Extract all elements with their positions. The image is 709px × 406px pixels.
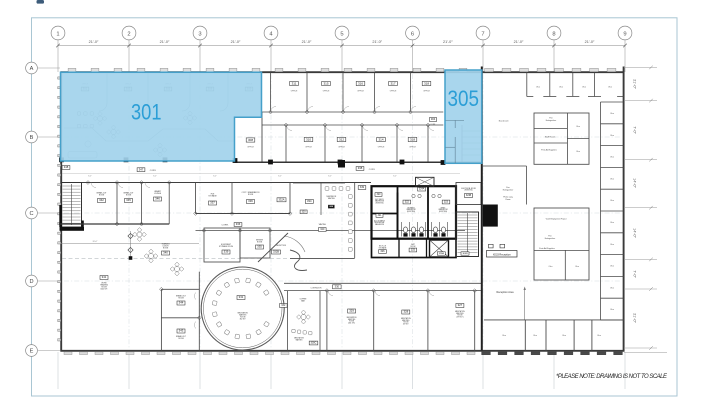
svg-text:8'-0″: 8'-0″	[88, 176, 92, 178]
svg-text:312: 312	[339, 137, 344, 141]
svg-text:Ofce: Ofce	[608, 87, 612, 89]
svg-text:327: 327	[458, 303, 463, 307]
svg-text:STORAGE ROOM: STORAGE ROOM	[219, 245, 234, 248]
svg-text:ROOM: ROOM	[178, 338, 184, 340]
svg-text:Fire: Fire	[506, 186, 509, 189]
svg-text:WAITING: WAITING	[319, 223, 327, 226]
svg-text:Ofce: Ofce	[533, 335, 537, 337]
svg-text:336: 336	[236, 222, 241, 226]
svg-text:OFFICE: OFFICE	[378, 147, 385, 149]
svg-text:337: 337	[210, 201, 215, 205]
svg-text:Ofce: Ofce	[610, 266, 614, 268]
svg-text:Staff Room: Staff Room	[545, 136, 556, 139]
svg-text:E: E	[30, 349, 34, 355]
svg-text:362 S.F.: 362 S.F.	[240, 318, 247, 320]
svg-text:CORRIDOR: CORRIDOR	[311, 287, 322, 289]
svg-text:335: 335	[257, 245, 262, 249]
svg-text:343: 343	[179, 329, 184, 333]
svg-text:(EXISTING): (EXISTING)	[407, 211, 416, 213]
svg-text:Ofce: Ofce	[597, 335, 601, 337]
svg-text:21'-0″: 21'-0″	[160, 40, 170, 44]
svg-text:Ofce: Ofce	[575, 266, 579, 268]
svg-text:CORR.: CORR.	[221, 225, 228, 227]
svg-text:329: 329	[349, 309, 354, 313]
svg-text:20'-0″: 20'-0″	[93, 241, 98, 243]
svg-text:315: 315	[323, 81, 328, 85]
svg-text:287 S.F.: 287 S.F.	[403, 324, 409, 326]
svg-text:ROOM: ROOM	[349, 321, 355, 323]
svg-text:Extinguisher: Extinguisher	[546, 119, 557, 122]
svg-text:332B: 332B	[273, 250, 279, 254]
svg-text:8'-0″: 8'-0″	[213, 176, 217, 178]
svg-text:331: 331	[239, 295, 244, 299]
svg-text:MEETING: MEETING	[456, 313, 464, 315]
svg-text:*PLEASE NOTE: DRAWING IS NOT T: *PLEASE NOTE: DRAWING IS NOT TO SCALE	[556, 374, 668, 380]
svg-text:Ofce: Ofce	[610, 178, 614, 180]
svg-text:3: 3	[198, 31, 201, 37]
svg-text:LOUNGE: LOUNGE	[154, 193, 162, 195]
svg-text:OFFICE: OFFICE	[409, 147, 416, 149]
svg-text:OFFICE: OFFICE	[357, 91, 364, 93]
svg-text:334: 334	[307, 199, 312, 203]
svg-text:Ofce: Ofce	[610, 222, 614, 224]
svg-text:349: 349	[360, 186, 365, 189]
svg-text:Ofce: Ofce	[549, 266, 553, 268]
svg-text:Ofce: Ofce	[610, 157, 614, 159]
svg-text:342: 342	[99, 198, 104, 202]
svg-text:Fire: Fire	[549, 117, 552, 120]
svg-text:ROOM: ROOM	[403, 322, 409, 324]
svg-text:21'-0″: 21'-0″	[372, 40, 382, 44]
svg-text:CORR.: CORR.	[430, 124, 436, 126]
svg-text:347: 347	[139, 167, 144, 171]
svg-text:Youth Employment Project: Youth Employment Project	[545, 218, 567, 221]
svg-text:(301 S.F.): (301 S.F.)	[348, 323, 355, 325]
svg-text:320: 320	[320, 228, 325, 231]
svg-text:8'-0″: 8'-0″	[393, 176, 397, 178]
svg-text:8: 8	[552, 31, 555, 37]
svg-text:Extinguisher: Extinguisher	[545, 237, 556, 240]
svg-text:OFFICE: OFFICE	[338, 147, 345, 149]
svg-text:339: 339	[224, 250, 229, 254]
svg-text:1: 1	[56, 31, 59, 37]
svg-text:21'-0″: 21'-0″	[89, 40, 99, 44]
svg-text:7'-0″: 7'-0″	[633, 270, 637, 278]
svg-text:8'-0″: 8'-0″	[278, 176, 282, 178]
svg-text:14'-0″: 14'-0″	[633, 228, 637, 238]
svg-text:OMIT: OMIT	[411, 244, 415, 246]
svg-text:318: 318	[410, 137, 415, 141]
svg-text:Fire: Fire	[548, 235, 551, 238]
svg-text:Ofce: Ofce	[576, 126, 580, 128]
svg-text:14'-0″: 14'-0″	[633, 178, 637, 188]
svg-text:First Aid Supplies: First Aid Supplies	[539, 247, 554, 250]
svg-text:21'-0″: 21'-0″	[585, 40, 595, 44]
svg-text:346: 346	[155, 197, 160, 201]
svg-text:305: 305	[448, 86, 480, 111]
svg-text:ROOM: ROOM	[457, 315, 463, 317]
svg-text:A: A	[30, 66, 34, 72]
svg-text:323: 323	[444, 201, 449, 204]
svg-text:MEN'S: MEN'S	[441, 208, 446, 210]
svg-text:328: 328	[403, 310, 408, 314]
svg-text:304B: 304B	[462, 253, 468, 255]
svg-text:Ofce: Ofce	[610, 135, 614, 137]
svg-text:Reception Area: Reception Area	[496, 291, 514, 294]
svg-text:ROOM: ROOM	[248, 194, 254, 196]
svg-text:ROOM: ROOM	[178, 298, 184, 300]
svg-text:CORR.: CORR.	[150, 170, 157, 172]
svg-text:336: 336	[248, 199, 253, 203]
svg-text:8'-0″: 8'-0″	[153, 176, 157, 178]
svg-text:314: 314	[378, 137, 383, 141]
svg-text:MEETING: MEETING	[402, 320, 410, 322]
svg-text:Ofce: Ofce	[610, 113, 614, 115]
svg-text:345: 345	[126, 198, 131, 202]
svg-text:325: 325	[411, 249, 416, 252]
svg-text:BICYCLE: BICYCLE	[379, 246, 386, 248]
svg-text:340: 340	[163, 251, 168, 255]
svg-text:Ofce: Ofce	[562, 335, 566, 337]
svg-text:MEETING: MEETING	[348, 319, 356, 321]
svg-text:B: B	[30, 135, 34, 141]
svg-text:344: 344	[179, 301, 184, 305]
svg-text:5: 5	[340, 31, 343, 37]
svg-text:21'-0″: 21'-0″	[302, 40, 312, 44]
svg-text:320: 320	[302, 210, 307, 213]
svg-text:OFFICE: OFFICE	[423, 91, 430, 93]
svg-text:Photo copy: Photo copy	[503, 196, 513, 199]
svg-text:Ofce: Ofce	[610, 287, 614, 289]
svg-text:330C: 330C	[311, 342, 317, 345]
svg-text:First Aid Supplies: First Aid Supplies	[541, 149, 556, 152]
svg-text:2: 2	[127, 31, 130, 37]
svg-text:ROOM: ROOM	[99, 195, 105, 197]
svg-text:RECEPTION: RECEPTION	[276, 245, 287, 247]
svg-text:317: 317	[390, 81, 395, 85]
svg-text:7: 7	[481, 31, 484, 37]
svg-text:OFFICE: OFFICE	[247, 147, 254, 149]
svg-text:(EXISTING): (EXISTING)	[375, 202, 384, 204]
svg-text:332A: 332A	[278, 198, 284, 202]
svg-text:311: 311	[292, 81, 297, 85]
svg-text:C: C	[29, 211, 33, 217]
svg-text:3000 S.F.: 3000 S.F.	[100, 288, 108, 290]
svg-text:D: D	[29, 279, 33, 285]
svg-text:WOMEN'S: WOMEN'S	[407, 208, 414, 210]
svg-text:ROOM: ROOM	[257, 242, 263, 244]
svg-text:21'-0″: 21'-0″	[514, 40, 524, 44]
svg-text:324B: 324B	[466, 195, 472, 197]
svg-text:21'-0″: 21'-0″	[633, 79, 637, 89]
svg-text:316: 316	[358, 81, 363, 85]
svg-text:338: 338	[358, 166, 363, 170]
svg-text:21'-0″: 21'-0″	[231, 40, 241, 44]
svg-text:Ofce: Ofce	[582, 87, 586, 89]
svg-text:Ofce: Ofce	[502, 335, 506, 337]
svg-text:(EXISTING): (EXISTING)	[464, 190, 473, 192]
svg-text:8'-0″: 8'-0″	[328, 176, 332, 178]
svg-text:(EXISTING): (EXISTING)	[439, 211, 448, 213]
svg-text:Room: Room	[505, 199, 510, 201]
svg-text:326A: 326A	[439, 252, 445, 255]
svg-text:6: 6	[411, 31, 414, 37]
svg-text:OFFICE: OFFICE	[305, 147, 312, 149]
svg-text:ROOM: ROOM	[163, 247, 169, 249]
svg-text:ROOM: ROOM	[410, 246, 416, 248]
svg-text:ROOM: ROOM	[126, 195, 132, 197]
svg-text:STORAGE: STORAGE	[208, 195, 217, 198]
svg-text:Extinguisher: Extinguisher	[503, 189, 514, 192]
svg-text:9: 9	[623, 31, 626, 37]
svg-text:324A: 324A	[419, 188, 425, 191]
svg-text:341: 341	[102, 275, 107, 279]
svg-text:Ofce: Ofce	[610, 200, 614, 202]
svg-text:Ofce: Ofce	[610, 244, 614, 246]
svg-text:OFFICE: OFFICE	[323, 91, 330, 93]
svg-text:330: 330	[335, 285, 340, 289]
svg-text:301: 301	[131, 100, 162, 125]
svg-text:(397 S.F.): (397 S.F.)	[456, 317, 463, 319]
svg-text:Ofce: Ofce	[576, 151, 580, 153]
svg-text:Ofce: Ofce	[610, 309, 614, 311]
svg-text:7'-0″: 7'-0″	[633, 126, 637, 134]
svg-text:332: 332	[281, 304, 286, 307]
svg-text:304: 304	[431, 117, 436, 121]
svg-text:OFFICE: OFFICE	[291, 91, 298, 93]
svg-text:318: 318	[424, 81, 429, 85]
svg-text:Ofce: Ofce	[559, 87, 563, 89]
svg-text:Boardroom: Boardroom	[499, 121, 509, 123]
svg-text:21'-0″: 21'-0″	[443, 40, 453, 44]
svg-text:21'-0″: 21'-0″	[633, 313, 637, 323]
svg-text:CORR.: CORR.	[369, 169, 376, 171]
svg-text:348: 348	[64, 165, 69, 169]
svg-text:X033 Reception: X033 Reception	[493, 253, 511, 256]
svg-text:308: 308	[248, 138, 253, 142]
svg-text:OFFICE: OFFICE	[390, 91, 397, 93]
svg-text:Ofce: Ofce	[536, 87, 540, 89]
svg-text:322: 322	[405, 201, 410, 204]
svg-text:310: 310	[306, 137, 311, 141]
svg-text:326: 326	[380, 250, 385, 253]
